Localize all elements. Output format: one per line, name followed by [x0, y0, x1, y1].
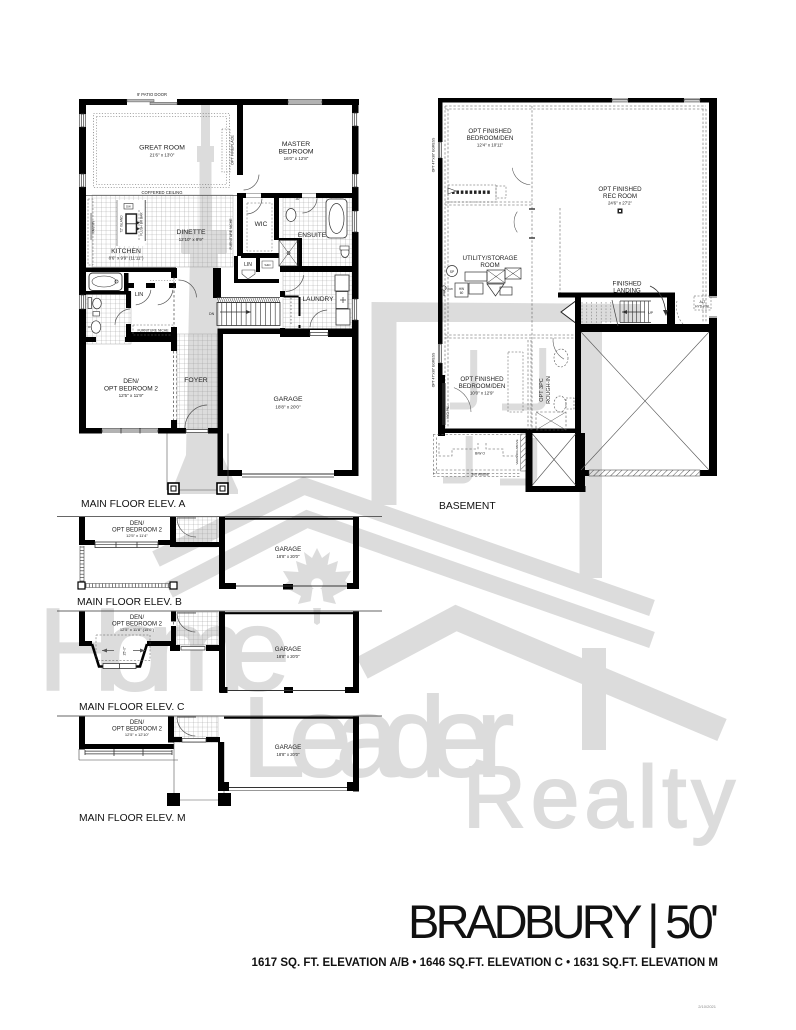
svg-text:8'6" x 9'9" (11'11"): 8'6" x 9'9" (11'11") — [109, 256, 144, 261]
svg-text:OPT 47"x36" EGRESS: OPT 47"x36" EGRESS — [432, 137, 436, 172]
svg-text:LAUNDRY: LAUNDRY — [303, 296, 335, 303]
svg-text:FLUSH BR BAR: FLUSH BR BAR — [140, 212, 144, 236]
svg-text:10'0" x 12'9": 10'0" x 12'9" — [470, 391, 495, 396]
svg-text:1617 SQ. FT. ELEVATION A/B • 1: 1617 SQ. FT. ELEVATION A/B • 1646 SQ.FT.… — [252, 957, 718, 969]
svg-text:UTILITY/STORAGE: UTILITY/STORAGE — [463, 255, 518, 262]
svg-text:PANTRY: PANTRY — [92, 220, 96, 234]
svg-text:GARAGE: GARAGE — [275, 646, 301, 653]
svg-text:ENSUITE: ENSUITE — [298, 232, 327, 239]
svg-text:ALT: ALT — [700, 300, 706, 304]
svg-text:LIN: LIN — [244, 262, 252, 268]
svg-text:DEN/: DEN/ — [123, 378, 139, 385]
svg-text:12'5" x 12'10": 12'5" x 12'10" — [125, 732, 150, 737]
svg-text:18'8" x 20'0": 18'8" x 20'0" — [275, 405, 301, 410]
svg-text:FINISHED: FINISHED — [613, 281, 642, 288]
svg-text:GARAGE: GARAGE — [275, 744, 301, 751]
svg-text:COFFERED CEILING: COFFERED CEILING — [142, 190, 183, 195]
svg-text:18'8" x 20'0": 18'8" x 20'0" — [277, 554, 300, 559]
svg-text:72" ISLAND: 72" ISLAND — [120, 215, 124, 233]
svg-text:REC ROOM: REC ROOM — [603, 193, 637, 200]
svg-text:UP: UP — [648, 311, 654, 315]
svg-text:BEDROOM: BEDROOM — [278, 149, 313, 156]
svg-text:LANDING: LANDING — [613, 288, 641, 295]
svg-text:WW: WW — [447, 287, 453, 291]
svg-text:FURNITURE NICHE: FURNITURE NICHE — [229, 218, 233, 250]
svg-text:ROUGH-IN: ROUGH-IN — [546, 376, 552, 404]
svg-text:SP: SP — [450, 270, 455, 274]
svg-text:21'6" x 13'0": 21'6" x 13'0" — [150, 153, 175, 158]
svg-text:12'4" x 10'11": 12'4" x 10'11" — [477, 143, 504, 148]
svg-text:OPT BEDROOM 2: OPT BEDROOM 2 — [104, 386, 158, 393]
svg-text:LIN: LIN — [135, 292, 144, 298]
svg-text:OPT FINISHED: OPT FINISHED — [468, 128, 512, 135]
svg-text:KITCHEN: KITCHEN — [111, 248, 141, 255]
svg-text:2/10/2021: 2/10/2021 — [698, 1004, 717, 1009]
svg-text:DN: DN — [209, 312, 215, 316]
svg-text:MAIN FLOOR ELEV. B: MAIN FLOOR ELEV. B — [77, 597, 182, 608]
svg-text:ROOM: ROOM — [480, 262, 499, 269]
svg-text:B/W O: B/W O — [475, 452, 485, 456]
svg-text:OPT FINISHED: OPT FINISHED — [598, 186, 642, 193]
svg-text:GARAGE: GARAGE — [273, 396, 303, 403]
svg-text:FOYER: FOYER — [184, 377, 208, 384]
svg-text:DINETTE: DINETTE — [176, 229, 206, 236]
svg-text:FURNITURE NICHE: FURNITURE NICHE — [137, 329, 169, 333]
svg-text:OPT 47"x36" EGRESS: OPT 47"x36" EGRESS — [432, 352, 436, 387]
svg-text:BRADBURY | 50': BRADBURY | 50' — [408, 895, 719, 948]
svg-text:25'-0": 25'-0" — [123, 646, 127, 655]
svg-text:MAIN FLOOR ELEV. M: MAIN FLOOR ELEV. M — [79, 813, 186, 824]
svg-text:12'10" x 9'9": 12'10" x 9'9" — [179, 237, 204, 242]
svg-text:MASTER: MASTER — [282, 141, 310, 148]
svg-text:BASEMENT: BASEMENT — [439, 501, 496, 512]
svg-text:12'5" x 11'4": 12'5" x 11'4" — [126, 533, 148, 538]
svg-text:9' PATIO DOOR: 9' PATIO DOOR — [137, 92, 167, 97]
svg-text:DEN/: DEN/ — [130, 521, 145, 527]
svg-text:VERANDA ABOVE: VERANDA ABOVE — [515, 439, 519, 464]
svg-text:DEN/: DEN/ — [130, 615, 145, 621]
svg-text:S&D: S&D — [264, 263, 271, 267]
svg-text:60: 60 — [460, 291, 464, 295]
svg-text:MAIN FLOOR ELEV. C: MAIN FLOOR ELEV. C — [79, 702, 185, 713]
svg-text:30": 30" — [296, 197, 302, 201]
svg-text:MAIN FLOOR ELEV. A: MAIN FLOOR ELEV. A — [81, 499, 185, 510]
svg-text:18'8" x 20'0": 18'8" x 20'0" — [277, 752, 300, 757]
svg-text:BEDROOM/DEN: BEDROOM/DEN — [459, 383, 506, 390]
svg-text:BEDROOM/DEN: BEDROOM/DEN — [467, 135, 514, 142]
svg-text:12'5" x 11'8" (15'0"): 12'5" x 11'8" (15'0") — [120, 627, 155, 632]
svg-text:OPT FIREPLACE: OPT FIREPLACE — [231, 135, 235, 165]
svg-text:WIC: WIC — [255, 221, 268, 228]
svg-text:DEN/: DEN/ — [130, 720, 145, 726]
svg-text:GARAGE: GARAGE — [275, 546, 301, 553]
svg-text:24'6" x 27'2": 24'6" x 27'2" — [608, 201, 633, 206]
svg-text:HYD-PNL: HYD-PNL — [695, 305, 710, 309]
svg-text:18'8" x 20'0": 18'8" x 20'0" — [277, 654, 300, 659]
svg-text:300 W6808: 300 W6808 — [471, 473, 488, 477]
svg-text:GREAT ROOM: GREAT ROOM — [139, 145, 185, 152]
svg-text:Realty: Realty — [463, 749, 736, 846]
svg-text:16'0" x 12'8": 16'0" x 12'8" — [284, 156, 309, 161]
svg-text:DW: DW — [126, 205, 131, 209]
svg-text:OPT 3PC: OPT 3PC — [539, 378, 545, 401]
svg-text:HYD PNL: HYD PNL — [446, 405, 450, 419]
svg-text:12'5" x 11'9": 12'5" x 11'9" — [119, 393, 144, 398]
svg-text:OPT FINISHED: OPT FINISHED — [460, 376, 504, 383]
